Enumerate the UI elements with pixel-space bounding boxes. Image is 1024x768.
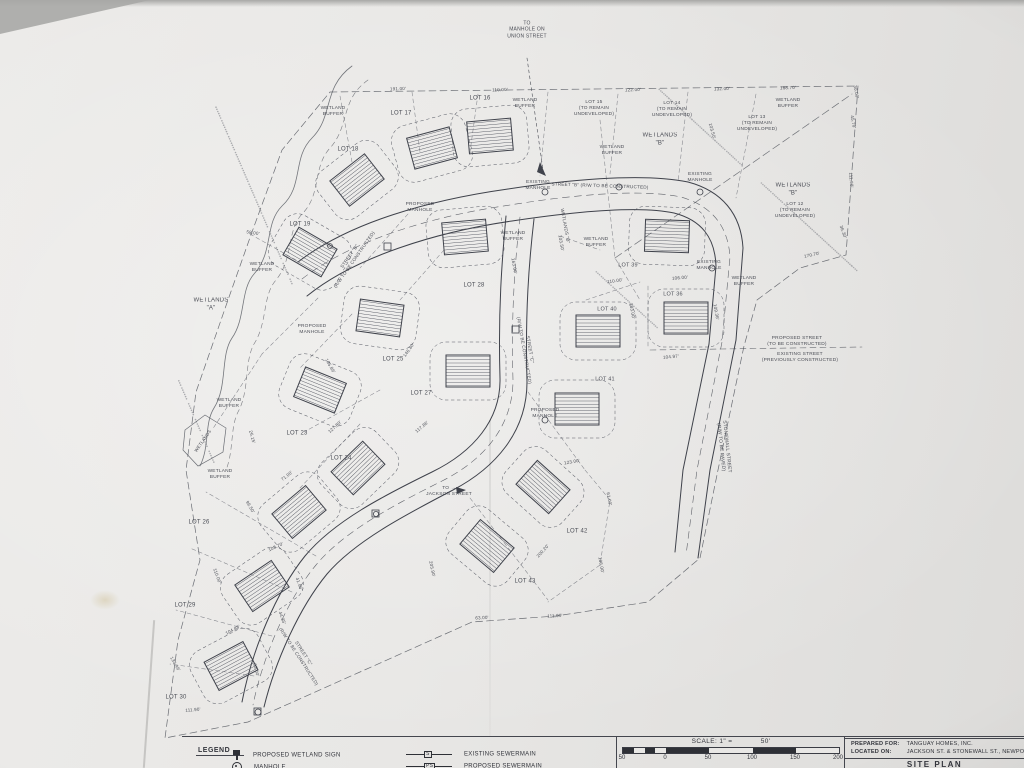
table-surface-edge xyxy=(0,0,1024,7)
parcel-boundary-line xyxy=(165,86,858,738)
legend-item-label: PROPOSED WETLAND SIGN xyxy=(253,753,341,759)
legend: LEGEND PROPOSED WETLAND SIGN MANHOLE S E… xyxy=(196,739,606,757)
photo-of-site-plan: TO MANHOLE ON UNION STREETLOT 17LOT 16LO… xyxy=(0,0,1024,768)
title-block: PREPARED FOR: TANGUAY HOMES, INC. LOCATE… xyxy=(845,738,1024,768)
legend-item: PS PROPOSED SEWERMAIN xyxy=(406,762,542,768)
scale-label: SCALE: 1" = 50' xyxy=(636,738,826,745)
house-footprint xyxy=(274,349,366,431)
legend-item: MANHOLE xyxy=(232,762,286,768)
located-on-row: LOCATED ON: JACKSON ST. & STONEWALL ST.,… xyxy=(851,749,1024,755)
legend-item: S EXISTING SEWERMAIN xyxy=(406,750,536,758)
house-footprint xyxy=(263,208,358,296)
house-footprint xyxy=(450,104,531,168)
house-footprint xyxy=(309,134,405,226)
house-footprint xyxy=(495,440,590,534)
house-footprint xyxy=(184,623,278,710)
scale-ticks: 50 0 50 100 150 200 xyxy=(622,755,838,763)
house-footprints xyxy=(184,104,724,710)
wetland-sign-icon xyxy=(232,750,241,760)
house-footprint xyxy=(338,284,421,352)
sheet-title: SITE PLAN xyxy=(845,760,1024,768)
legend-item-label: PROPOSED SEWERMAIN xyxy=(464,764,542,768)
sewer-line-to-union-street xyxy=(527,58,543,170)
house-footprint xyxy=(311,421,406,516)
house-footprint xyxy=(430,342,506,400)
house-footprint xyxy=(648,289,724,347)
legend-item: PROPOSED WETLAND SIGN xyxy=(232,750,341,760)
title-block-line xyxy=(845,758,1024,759)
proposed-sewermain-icon: PS xyxy=(406,762,452,768)
drawing-footer: LEGEND PROPOSED WETLAND SIGN MANHOLE S E… xyxy=(0,736,1024,768)
footer-border-line xyxy=(182,736,1024,737)
scale-bar: SCALE: 1" = 50' 50 0 50 100 xyxy=(618,737,842,767)
street-limit-line xyxy=(650,347,862,350)
manhole-icon xyxy=(232,762,242,768)
house-footprint xyxy=(388,110,476,186)
paper-stain xyxy=(90,590,120,610)
legend-item-label: MANHOLE xyxy=(254,765,286,768)
house-footprint xyxy=(214,541,309,632)
house-footprint xyxy=(439,499,535,592)
flow-arrow xyxy=(537,162,546,176)
legend-item-label: EXISTING SEWERMAIN xyxy=(464,752,536,758)
prepared-for-row: PREPARED FOR: TANGUAY HOMES, INC. xyxy=(851,741,973,747)
house-footprint xyxy=(251,465,347,558)
footer-divider xyxy=(616,736,617,768)
to-jackson-arrow xyxy=(456,487,466,494)
existing-sewermain-icon: S xyxy=(406,750,452,758)
wetland-marsh-dots-left xyxy=(178,106,293,463)
house-footprint xyxy=(560,302,636,360)
paper-fold xyxy=(489,420,491,736)
title-block-line xyxy=(845,738,1024,739)
wetland-marsh-dots-right xyxy=(596,89,858,329)
house-footprint xyxy=(539,380,615,438)
scale-bar-graphic xyxy=(622,747,840,754)
wetland-buffer-line xyxy=(226,80,368,470)
paper-sheet: TO MANHOLE ON UNION STREETLOT 17LOT 16LO… xyxy=(0,0,1024,768)
site-plan-drawing xyxy=(0,0,1024,768)
house-footprint xyxy=(425,205,506,269)
house-footprint xyxy=(628,206,706,267)
